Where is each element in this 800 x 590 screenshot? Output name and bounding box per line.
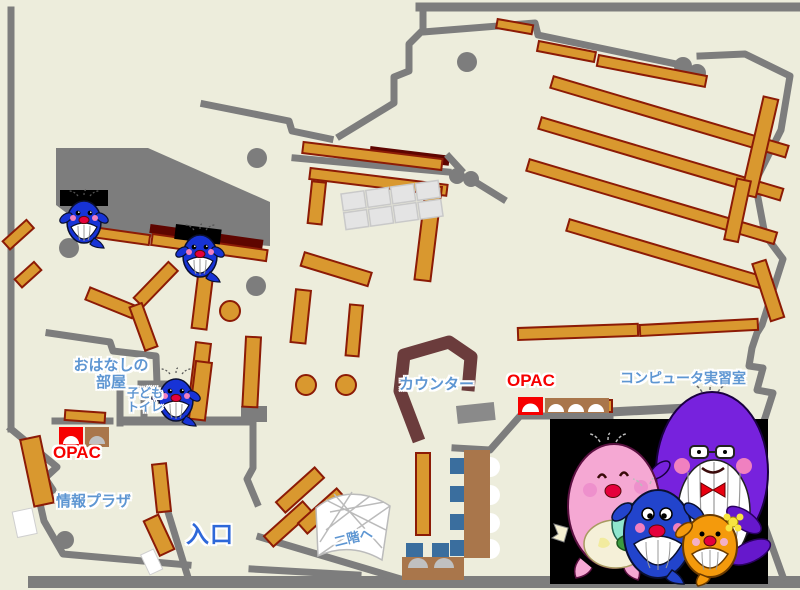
label-line: トイレ	[127, 400, 163, 414]
library-floor-map: おはなしの 部屋 子ども トイレ OPAC 情報プラザ 入口 カウンター OPA…	[0, 0, 800, 590]
label-entrance: 入口	[186, 521, 234, 547]
opac-station-right	[518, 397, 609, 415]
bookshelf	[308, 181, 326, 224]
bookshelf	[346, 304, 363, 356]
label-counter: カウンター	[399, 376, 474, 393]
bookshelf	[518, 324, 638, 340]
bookshelf	[3, 220, 34, 250]
bookshelf	[129, 303, 157, 351]
label-opac-right: OPAC	[507, 371, 555, 391]
bookshelf	[640, 319, 758, 336]
round-table	[336, 375, 356, 395]
bookshelf	[290, 289, 310, 343]
desk	[456, 402, 496, 424]
round-table	[296, 375, 316, 395]
bookshelf	[15, 262, 42, 288]
stairs-to-2f	[316, 492, 390, 560]
bookshelf	[416, 453, 430, 535]
chair	[406, 543, 423, 557]
pillar	[247, 148, 267, 168]
bookshelf	[242, 337, 261, 408]
label-computer-room: コンピュータ実習室	[620, 370, 746, 386]
bookshelf	[192, 275, 213, 329]
pillar	[56, 531, 74, 549]
label-opac-left: OPAC	[53, 443, 101, 463]
pillar	[463, 171, 479, 187]
chair	[450, 514, 464, 530]
reading-table	[464, 450, 490, 558]
bookshelf	[301, 252, 372, 286]
label-line: おはなしの	[73, 357, 148, 374]
reading-table	[402, 557, 464, 580]
label-info-plaza: 情報プラザ	[56, 493, 131, 510]
pillar	[457, 52, 477, 72]
bookshelf	[152, 463, 171, 512]
label-kids-toilet: 子ども トイレ	[112, 387, 178, 415]
pillar	[246, 276, 266, 296]
chair	[450, 486, 464, 502]
chair	[432, 543, 449, 557]
bookshelf	[65, 410, 106, 423]
bookshelf	[134, 262, 178, 307]
label-line: 子ども	[127, 386, 163, 400]
chair	[450, 458, 464, 474]
round-table	[220, 301, 240, 321]
shelf-end	[12, 508, 37, 538]
pillar	[449, 168, 465, 184]
bookshelf	[85, 287, 136, 318]
chair	[450, 540, 464, 556]
